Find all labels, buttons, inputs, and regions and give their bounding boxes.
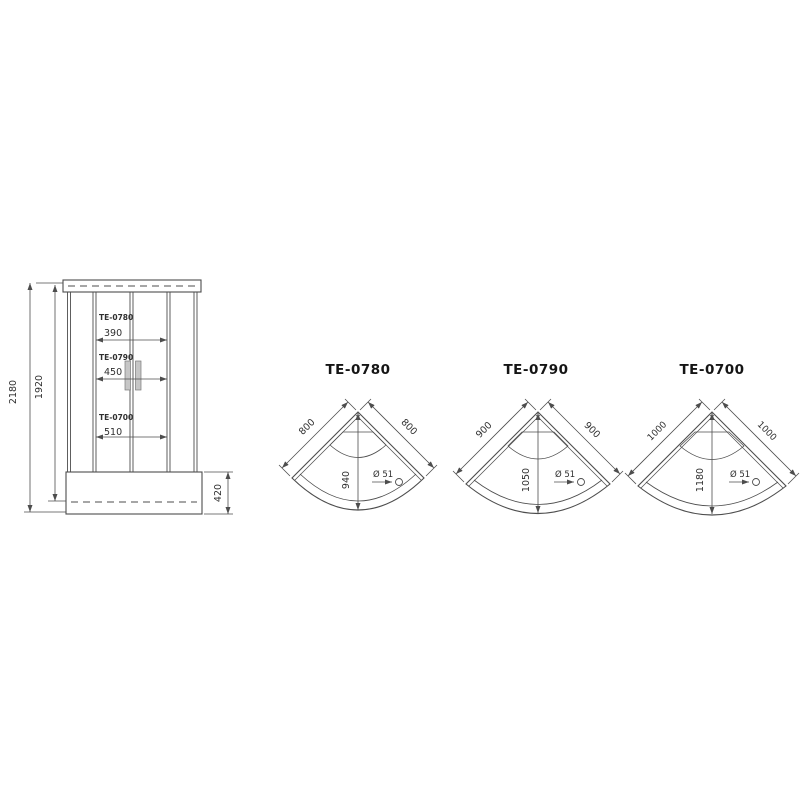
tray-3-depth-label: 1180 bbox=[695, 468, 706, 492]
tray-3-side-left-label: 1000 bbox=[646, 420, 669, 443]
tray-2-end-tick-left bbox=[453, 471, 464, 482]
tray-1-drain-label: Ø 51 bbox=[373, 469, 393, 480]
tray-1-end-tick-left bbox=[279, 465, 290, 476]
door-width-3-label: 510 bbox=[104, 427, 122, 438]
tray-1-depth-label: 940 bbox=[341, 471, 352, 489]
tray-1-corner-tick-left bbox=[345, 399, 356, 410]
tray-3-drain-label: Ø 51 bbox=[730, 469, 750, 480]
tray-base bbox=[66, 472, 202, 514]
tray-2-side-left-label: 900 bbox=[474, 420, 495, 441]
shower-dimension-sheet: TE-0780 390 TE-0790 450 TE-0700 510 2180… bbox=[0, 0, 800, 800]
front-elevation: TE-0780 390 TE-0790 450 TE-0700 510 2180… bbox=[8, 280, 233, 514]
tray-1-end-tick-right bbox=[426, 465, 437, 476]
tray-3-end-tick-left bbox=[625, 473, 636, 484]
door-model-1-label: TE-0780 bbox=[99, 313, 133, 322]
door-model-2-label: TE-0790 bbox=[99, 353, 133, 362]
height-dimensions bbox=[24, 283, 66, 512]
tray-1-corner-tick-right bbox=[360, 399, 371, 410]
tray-2-title: TE-0790 bbox=[503, 362, 568, 378]
tray-2-end-tick-right bbox=[612, 471, 623, 482]
door-handle-left bbox=[125, 361, 131, 390]
tray-2-drain-label: Ø 51 bbox=[555, 469, 575, 480]
tray-1-side-left-label: 800 bbox=[297, 417, 318, 438]
tray-3-corner-tick-left bbox=[699, 399, 710, 410]
door-width-1-label: 390 bbox=[104, 328, 122, 339]
tray-3-drain-hole bbox=[753, 479, 760, 486]
tray-2-side-right-label: 900 bbox=[581, 420, 602, 441]
tray-2-corner-tick-right bbox=[540, 399, 551, 410]
tray-3-corner-tick-right bbox=[714, 399, 725, 410]
door-width-2-label: 450 bbox=[104, 367, 122, 378]
tray-3-end-tick-right bbox=[788, 473, 799, 484]
tray-2-depth-label: 1050 bbox=[521, 468, 532, 492]
top-view-te-0790: TE-0790 1050 900 900 Ø 51 bbox=[453, 362, 623, 514]
overall-height-label: 2180 bbox=[8, 380, 19, 404]
technical-drawing: TE-0780 390 TE-0790 450 TE-0700 510 2180… bbox=[0, 0, 800, 800]
tray-2-drain-hole bbox=[578, 479, 585, 486]
tray-height-label: 420 bbox=[213, 484, 224, 502]
tray-1-side-right-label: 800 bbox=[398, 417, 419, 438]
tray-1-drain-hole bbox=[396, 479, 403, 486]
top-view-te-0780: TE-0780 940 800 800 Ø 51 bbox=[279, 362, 437, 510]
cabin-height-label: 1920 bbox=[34, 375, 45, 399]
tray-3-side-right-label: 1000 bbox=[755, 420, 778, 443]
door-handle-right bbox=[136, 361, 142, 390]
top-view-te-0700: TE-0700 1180 1000 1000 Ø 51 bbox=[625, 362, 799, 515]
tray-1-title: TE-0780 bbox=[325, 362, 390, 378]
door-model-3-label: TE-0700 bbox=[99, 413, 133, 422]
tray-3-title: TE-0700 bbox=[679, 362, 744, 378]
tray-2-corner-tick-left bbox=[525, 399, 536, 410]
